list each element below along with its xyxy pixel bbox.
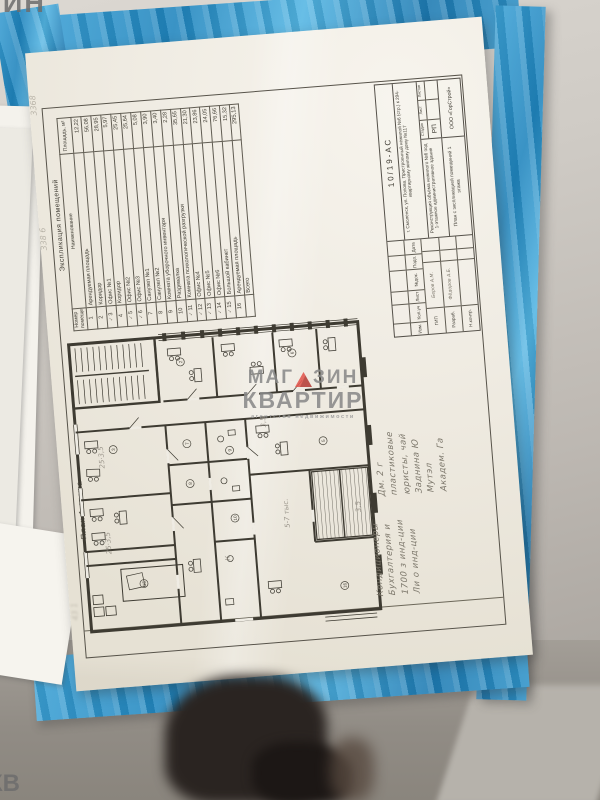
agency-watermark: МАГЗИН КВАРТИР агентство недвижимости [238, 368, 368, 420]
room-marker: 3 [111, 448, 116, 451]
watermark-line1: МАГЗИН [238, 368, 368, 387]
red-triangle-logo-icon [295, 372, 312, 387]
sig-header: Изм. [411, 321, 428, 335]
pencil-dimension: 25·3,5 [97, 445, 107, 468]
sig-role: ГИП [427, 307, 445, 334]
pencil-margin-note: 338 6 [38, 227, 49, 251]
pencil-price-note: 5-7 тыс. [282, 498, 292, 528]
explication-rows: 1 Арендуемая площадь 12,22 2 Коридор 56,… [71, 105, 247, 330]
sig-role: Разраб. [444, 305, 462, 332]
explication-table: Экспликация помещений Номер помещения На… [47, 103, 256, 332]
sig-header: Лист [409, 289, 426, 303]
room-marker: 15 [142, 580, 147, 586]
room-number: 6 [138, 310, 144, 314]
room-marker: 6 [290, 351, 295, 354]
pencil-margin-smudge: 43 1 [70, 602, 80, 620]
total-area: 295,13 [230, 104, 242, 141]
room-marker: 9 [227, 448, 232, 451]
signature-grid: Изм. Кол.уч Лист №док. Подп. Дата ГИП Бе… [387, 234, 479, 337]
room-marker: 2 [178, 360, 183, 363]
watermark-text: ЗИН [313, 368, 358, 387]
room-marker: 7 [185, 442, 190, 445]
floor-plan-drawing: 2 3 5 6 7 8 9 10 15 16 25·3,5 25·3,5 3,5… [61, 297, 388, 642]
watermark-tagline: агентство недвижимости [238, 414, 368, 420]
watermark-corner-fragment: ЗИН [0, 0, 46, 19]
room-number: 5 [128, 311, 134, 315]
room-marker: 16 [342, 582, 347, 588]
stage-header: Листов [417, 82, 425, 101]
document-paper: 3368 338 6 43 1 План 1 этажа Экспликация… [25, 17, 533, 692]
sig-header: Кол.уч [410, 302, 428, 322]
room-marker: 8 [188, 482, 193, 485]
watermark-line2: КВАРТИР [238, 387, 368, 413]
sig-name [458, 258, 478, 305]
person-leg-shadow [330, 738, 374, 800]
watermark-text: МАГ [248, 368, 294, 387]
room-number: 3 [108, 312, 114, 316]
sig-header: Дата [405, 240, 422, 254]
room-marker: 5 [321, 439, 326, 442]
pencil-margin-note: 3368 [28, 95, 39, 116]
watermark-corner-fragment: КВ [0, 770, 20, 798]
title-block: Изм. Кол.уч Лист №док. Подп. Дата ГИП Бе… [374, 78, 481, 338]
sig-header: №док. [407, 268, 425, 290]
photo-scene: 3368 338 6 43 1 План 1 этажа Экспликация… [0, 0, 600, 800]
sig-header: Подп. [406, 253, 423, 269]
company-name: ООО «ГорСтрой» [438, 79, 465, 139]
sig-role: Н.контр. [461, 304, 479, 331]
room-marker: 10 [233, 515, 238, 521]
stage-value: РП [428, 118, 442, 138]
pencil-dimension: 3,5 [354, 500, 363, 512]
pencil-dimension: 25·3,5 [104, 531, 114, 554]
